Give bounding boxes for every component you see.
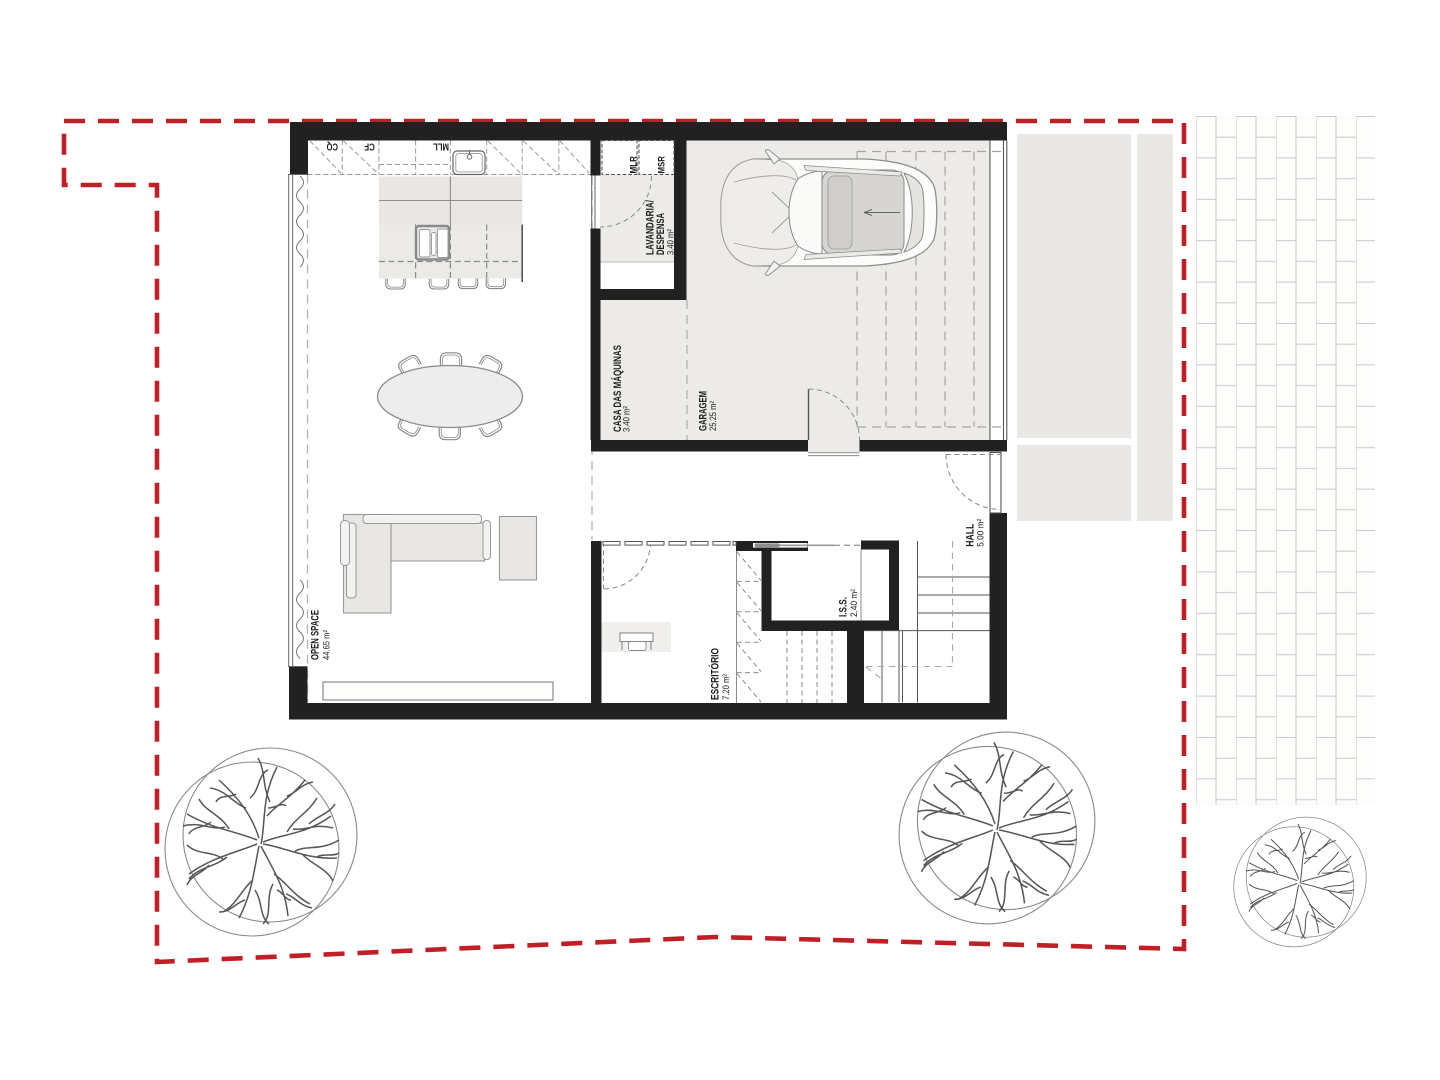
svg-text:ESCRITÓRIO: ESCRITÓRIO [709, 648, 722, 700]
svg-text:MLR: MLR [628, 156, 638, 174]
svg-text:44.65 m²: 44.65 m² [322, 630, 332, 660]
svg-text:MLL: MLL [433, 141, 449, 152]
svg-text:I.S.S.: I.S.S. [838, 597, 850, 617]
svg-text:25.25 m²: 25.25 m² [708, 401, 718, 431]
svg-text:7.20 m²: 7.20 m² [721, 674, 731, 700]
svg-text:CF: CF [364, 141, 375, 152]
svg-text:2.40 m²: 2.40 m² [849, 589, 859, 617]
svg-text:CQ: CQ [326, 141, 338, 152]
svg-text:MSR: MSR [656, 156, 666, 174]
svg-text:3.40 m²: 3.40 m² [666, 229, 676, 255]
svg-text:5.00 m²: 5.00 m² [976, 519, 986, 547]
svg-text:OPEN SPACE: OPEN SPACE [310, 610, 322, 660]
svg-text:3.40 m²: 3.40 m² [622, 406, 632, 432]
